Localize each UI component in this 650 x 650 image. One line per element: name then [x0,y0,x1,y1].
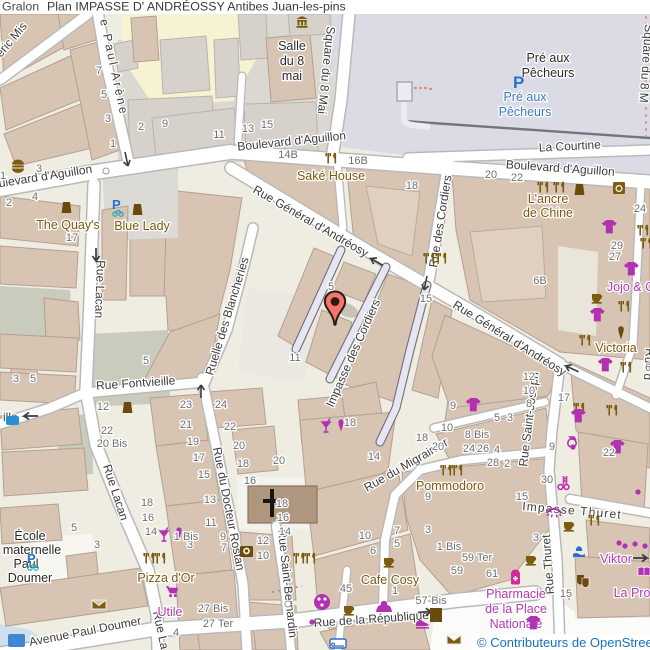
svg-text:Utile: Utile [157,605,182,619]
svg-text:Doumer: Doumer [8,571,52,585]
svg-text:7: 7 [221,542,227,554]
svg-text:22: 22 [101,425,113,437]
svg-text:28: 28 [487,457,499,469]
svg-text:27: 27 [609,251,621,263]
svg-text:5: 5 [101,89,107,101]
svg-text:11: 11 [205,517,216,529]
svg-text:Pré aux: Pré aux [526,51,570,65]
svg-text:20: 20 [485,169,497,181]
svg-text:2: 2 [504,458,510,470]
svg-text:1: 1 [110,138,116,150]
svg-text:10: 10 [257,550,269,562]
svg-text:18: 18 [416,432,428,444]
svg-text:19: 19 [187,436,199,448]
svg-text:Pêcheurs: Pêcheurs [522,66,575,80]
svg-text:59: 59 [451,565,463,577]
svg-text:12: 12 [257,535,269,547]
svg-text:24: 24 [215,399,227,411]
svg-text:4: 4 [494,444,500,456]
svg-text:18: 18 [344,417,356,429]
svg-text:2: 2 [138,121,144,133]
svg-text:15: 15 [261,119,273,131]
svg-text:1 Bis: 1 Bis [174,531,199,543]
svg-text:4: 4 [173,627,179,639]
svg-text:12: 12 [523,371,535,383]
svg-text:du 8: du 8 [280,54,304,68]
svg-text:15: 15 [516,491,528,503]
svg-text:Saké House: Saké House [297,169,365,183]
svg-text:3: 3 [13,373,19,385]
svg-text:13: 13 [242,123,254,135]
svg-text:59 Ter: 59 Ter [462,552,493,564]
svg-text:24: 24 [463,443,475,455]
svg-text:17: 17 [558,392,570,404]
svg-text:15: 15 [420,293,432,305]
svg-text:17: 17 [193,452,205,464]
svg-text:3: 3 [425,524,431,536]
svg-text:3: 3 [533,532,539,544]
svg-text:16: 16 [244,475,256,487]
svg-text:Pharmacie: Pharmacie [486,587,546,601]
svg-text:45: 45 [340,583,352,595]
svg-text:7: 7 [96,65,102,77]
svg-text:5: 5 [30,373,36,385]
svg-text:20: 20 [432,441,444,453]
svg-text:de Chine: de Chine [523,206,573,220]
svg-text:6: 6 [370,545,376,557]
svg-text:22: 22 [511,172,523,184]
svg-text:20 Bis: 20 Bis [97,438,128,450]
svg-text:3: 3 [94,539,100,551]
svg-text:Salle: Salle [278,39,306,53]
svg-text:Pêcheurs: Pêcheurs [499,105,552,119]
svg-text:7: 7 [394,525,400,537]
svg-text:61: 61 [486,568,498,580]
svg-text:27 Ter: 27 Ter [203,618,234,630]
svg-text:6: 6 [645,362,650,374]
svg-text:16: 16 [277,512,289,524]
svg-text:22: 22 [224,421,236,433]
svg-text:24: 24 [634,203,646,215]
svg-text:© Contributeurs de OpenStreetM: © Contributeurs de OpenStreetMap [477,635,650,650]
svg-text:21: 21 [180,419,192,431]
svg-text:22: 22 [603,447,615,459]
svg-text:9: 9 [162,118,168,130]
svg-text:Pré aux: Pré aux [503,90,547,104]
svg-text:11: 11 [213,129,224,141]
svg-text:18: 18 [276,498,288,510]
svg-text:8 Bis: 8 Bis [465,429,490,441]
svg-text:13: 13 [204,494,216,506]
svg-text:14: 14 [279,526,291,538]
svg-text:57-Bis: 57-Bis [415,595,447,607]
svg-text:Pizza d'Or: Pizza d'Or [137,571,194,585]
svg-text:École: École [14,528,45,543]
svg-text:5: 5 [71,522,77,534]
svg-text:5: 5 [494,412,500,424]
svg-text:14: 14 [145,526,157,538]
svg-text:10: 10 [523,385,535,397]
svg-text:15: 15 [560,588,572,600]
svg-text:30: 30 [541,474,553,486]
svg-text:Jojo & Cé: Jojo & Cé [607,280,650,294]
svg-text:18: 18 [237,458,249,470]
svg-text:3: 3 [507,412,513,424]
svg-text:Blue Lady: Blue Lady [114,219,170,233]
svg-text:10: 10 [359,530,371,542]
svg-text:16B: 16B [348,155,368,167]
svg-text:26: 26 [477,443,489,455]
svg-text:20: 20 [233,440,245,452]
svg-text:10: 10 [441,422,453,434]
svg-text:27 Bis: 27 Bis [198,603,229,615]
svg-text:14: 14 [368,451,380,463]
svg-text:14B: 14B [278,149,298,161]
svg-text:1: 1 [392,585,398,597]
svg-text:4: 4 [32,191,38,203]
svg-text:23: 23 [180,399,192,411]
svg-text:6B: 6B [533,275,546,287]
svg-text:5: 5 [143,355,149,367]
svg-text:Gralon: Gralon [2,0,39,14]
svg-text:1 Bis: 1 Bis [437,541,462,553]
svg-text:17: 17 [66,232,78,244]
svg-text:15: 15 [198,469,210,481]
svg-text:mai: mai [282,69,302,83]
svg-text:18: 18 [141,497,153,509]
svg-text:11: 11 [289,352,300,364]
svg-text:8: 8 [526,398,532,410]
svg-text:Viktor: Viktor [600,552,632,566]
svg-text:Cafe Cosy: Cafe Cosy [361,573,420,587]
svg-text:9: 9 [549,441,555,453]
svg-text:The Quay's: The Quay's [36,218,100,232]
svg-text:9: 9 [450,400,456,412]
svg-text:de la Place: de la Place [485,602,547,616]
svg-text:Rue Lacan: Rue Lacan [92,260,108,319]
svg-text:Plan IMPASSE D' ANDRÉOSSY Anti: Plan IMPASSE D' ANDRÉOSSY Antibes Juan-l… [47,0,346,14]
svg-text:2: 2 [6,197,12,209]
svg-text:18: 18 [406,180,418,192]
svg-text:3: 3 [105,113,111,125]
svg-text:3: 3 [36,163,42,175]
svg-text:5: 5 [394,538,400,550]
svg-text:16: 16 [142,512,154,524]
svg-text:9: 9 [425,491,431,503]
svg-text:12: 12 [97,401,109,413]
svg-text:20: 20 [273,455,285,467]
svg-text:L'ancre: L'ancre [528,192,569,206]
svg-text:La Pro: La Pro [614,586,650,600]
svg-text:1: 1 [0,170,6,182]
svg-text:Victoria: Victoria [595,341,637,355]
